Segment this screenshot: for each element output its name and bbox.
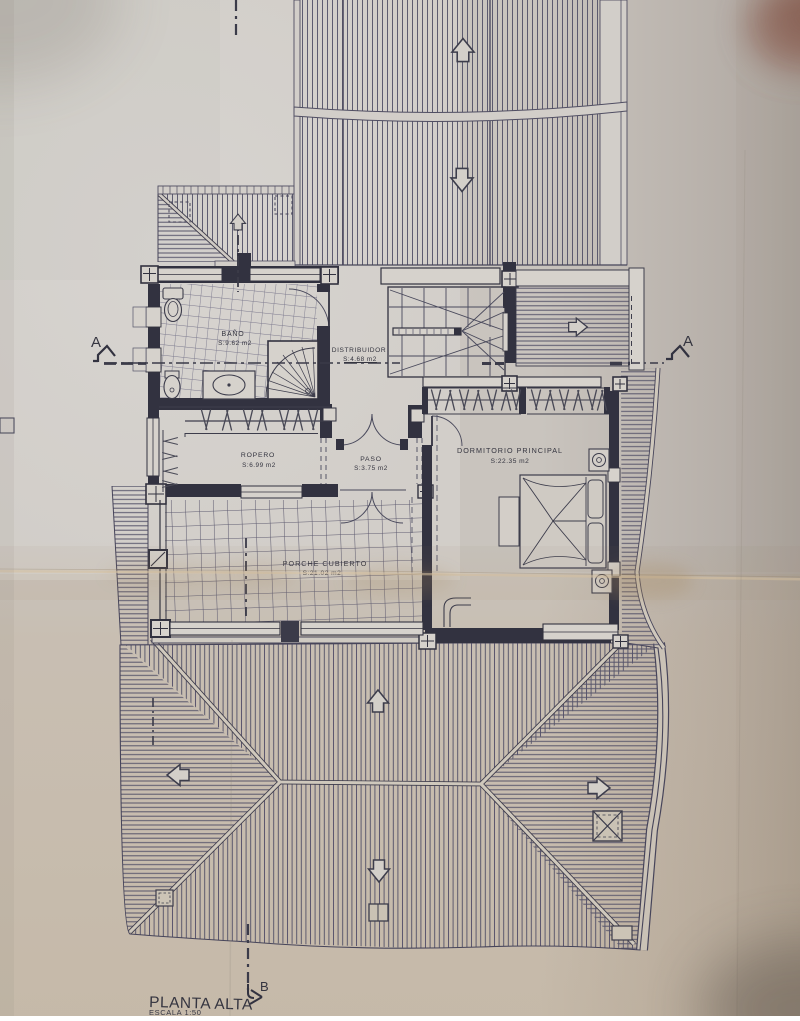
svg-text:BAÑO: BAÑO [221, 329, 244, 338]
svg-text:ROPERO: ROPERO [241, 452, 275, 459]
svg-text:A: A [91, 334, 101, 351]
svg-text:ESCALA 1:50: ESCALA 1:50 [149, 1008, 201, 1016]
svg-text:DISTRIBUIDOR: DISTRIBUIDOR [332, 347, 386, 354]
svg-text:PASO: PASO [360, 456, 382, 463]
svg-text:S:6.99 m2: S:6.99 m2 [242, 462, 276, 469]
svg-text:DORMITORIO PRINCIPAL: DORMITORIO PRINCIPAL [457, 446, 563, 455]
svg-text:S:9.62 m2: S:9.62 m2 [218, 340, 252, 347]
svg-text:S:22.35 m2: S:22.35 m2 [491, 458, 530, 465]
svg-text:A: A [683, 333, 693, 350]
svg-text:S:3.75 m2: S:3.75 m2 [354, 465, 388, 472]
svg-text:B: B [260, 979, 269, 994]
svg-text:S:4.68 m2: S:4.68 m2 [343, 356, 377, 363]
